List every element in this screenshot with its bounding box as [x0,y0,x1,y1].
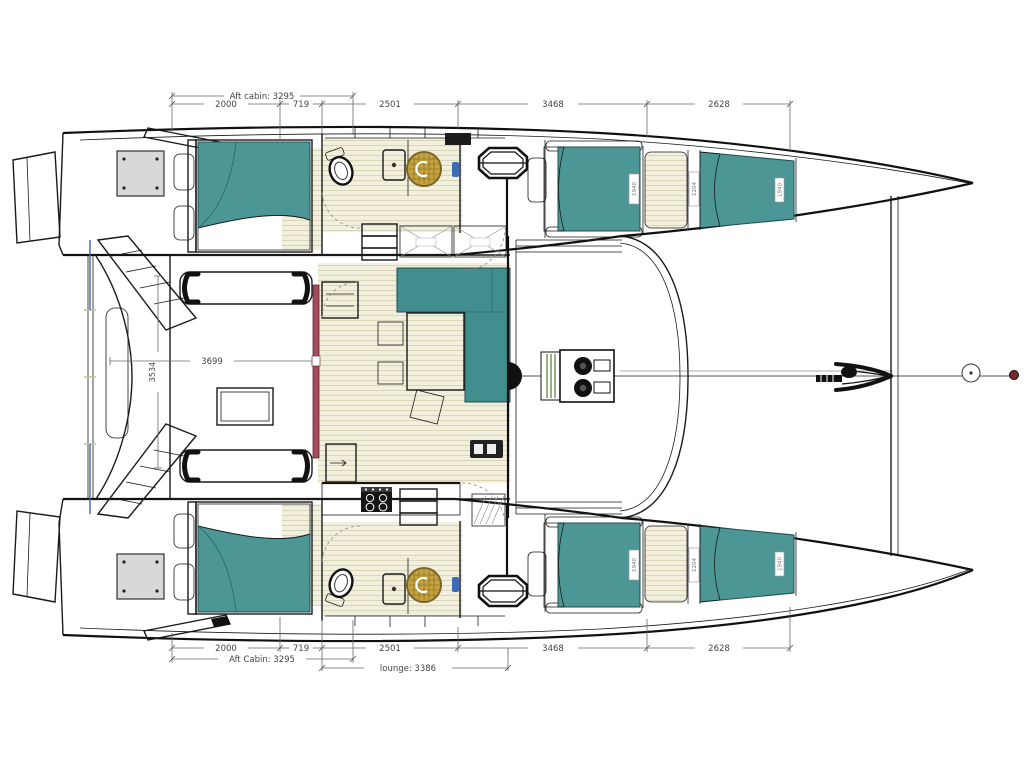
aft-platform-curve [96,256,132,499]
dim-aft-cabin-top: Aft cabin: 3295 [230,92,295,102]
svg-text:3468: 3468 [542,644,564,654]
winch-pod [560,350,614,402]
svg-text:2000: 2000 [215,644,237,654]
dim-beam-inner: 3534 [148,362,157,382]
svg-text:1940: 1940 [632,558,638,572]
boarding-steps-top [98,236,196,330]
svg-text:2628: 2628 [708,644,730,654]
shower-mixer-top [452,162,459,177]
stbd-transom-edge [59,523,63,635]
svg-text:1940: 1940 [778,557,784,571]
svg-text:2628: 2628 [708,100,730,110]
bowsprit-tip [1010,371,1019,380]
svg-text:1204: 1204 [692,182,698,196]
headboard-bottom [188,502,196,614]
helm-seat-top [479,148,527,250]
catamaran-plan-drawing: 1940 1204 1940 1940 1204 1940 [0,0,1024,768]
deck-plan-canvas: 1940 1204 1940 1940 1204 1940 [0,0,1024,768]
svg-text:1204: 1204 [692,558,698,572]
headboard-top [188,140,196,252]
svg-text:3468: 3468 [542,100,564,110]
waterline-ticks [84,310,96,444]
svg-text:719: 719 [293,100,309,110]
windlass [841,366,857,378]
coachroof-front-curve [620,236,688,518]
cockpit-bench-top [180,272,312,304]
stbd-swim-platform [13,511,60,602]
helm-seat-bottom [479,504,527,606]
svg-text:1940: 1940 [632,182,638,196]
dim-lounge: lounge: 3386 [380,664,436,674]
shower-mixer-bottom [452,577,459,592]
stern-area [13,128,230,640]
locker-top [445,133,471,145]
hull-lockers-bottom [325,616,505,627]
sliding-door [313,285,319,458]
mast [508,362,522,390]
svg-text:2000: 2000 [215,100,237,110]
fwd-corridor-floor-bottom [645,526,687,602]
fwd-berth-top [558,147,640,231]
fwd-berth-bottom [558,523,640,607]
svg-text:1940: 1940 [778,183,784,197]
dim-aft-cabin-bottom: Aft Cabin: 3295 [229,655,295,665]
transom-bench [106,308,128,438]
dim-cockpit-saloon: 3699 [201,357,223,367]
svg-text:719: 719 [293,644,309,654]
cockpit-table [217,388,273,425]
fwd-corridor-floor-top [645,152,687,228]
aft-berth-bottom [198,526,310,612]
svg-text:2501: 2501 [379,644,401,654]
mainsheet-traveller [541,352,561,400]
anchor-chain [816,375,842,382]
bridle-seagull-striker [816,364,891,390]
svg-text:2501: 2501 [379,100,401,110]
dim-left [110,276,312,468]
hull-lockers-top [325,127,505,138]
companionway-steps-bottom [400,489,437,525]
cockpit-bench-bottom [180,450,312,482]
port-swim-platform [13,152,60,243]
aft-berth-top [198,142,310,228]
